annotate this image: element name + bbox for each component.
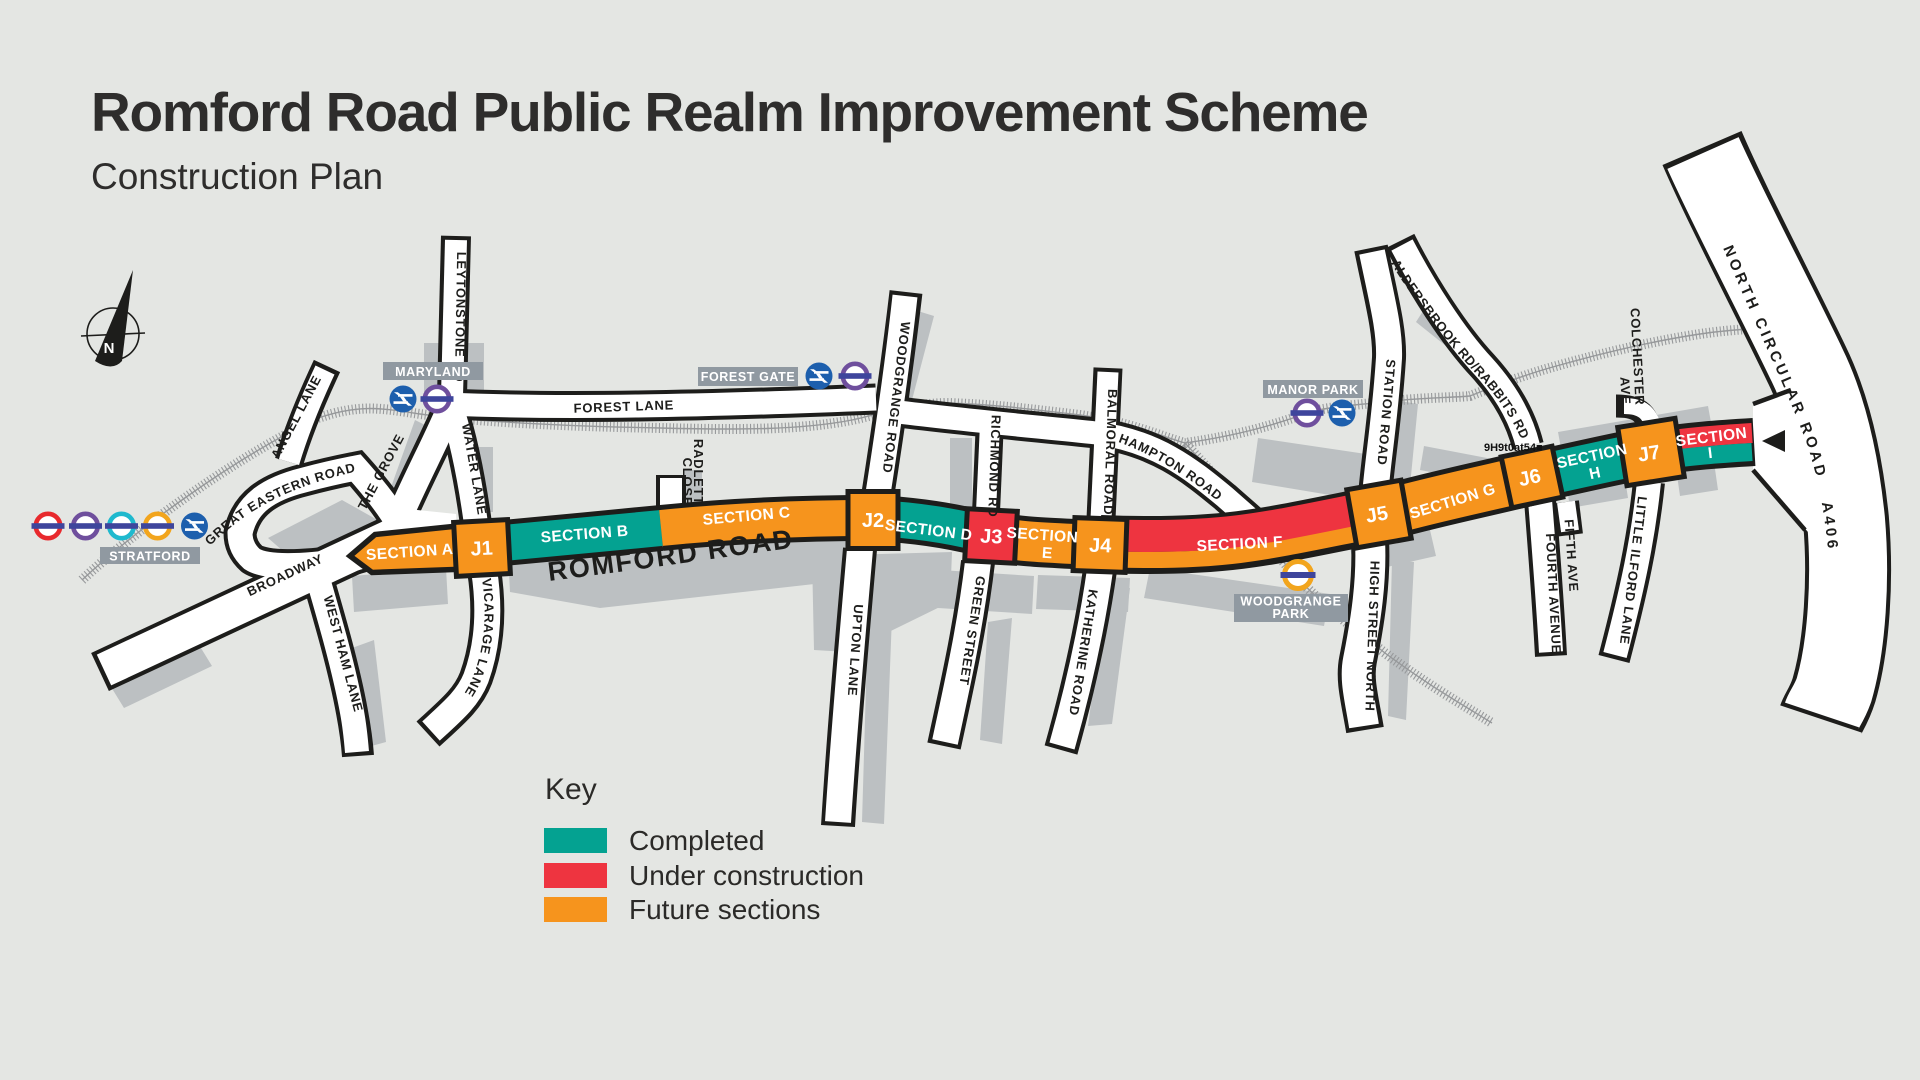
svg-text:MARYLAND: MARYLAND <box>395 365 471 379</box>
svg-text:PARK: PARK <box>1273 607 1310 621</box>
svg-text:Construction Plan: Construction Plan <box>91 156 383 197</box>
svg-text:STRATFORD: STRATFORD <box>109 550 191 564</box>
svg-text:AVE: AVE <box>1617 376 1633 405</box>
svg-text:J7: J7 <box>1636 441 1661 466</box>
svg-text:Future sections: Future sections <box>629 894 820 925</box>
svg-text:9H9t0at54■: 9H9t0at54■ <box>1484 442 1543 454</box>
svg-text:J3: J3 <box>980 525 1003 548</box>
svg-text:MANOR PARK: MANOR PARK <box>1267 383 1358 397</box>
svg-text:J6: J6 <box>1517 465 1543 491</box>
svg-text:N: N <box>104 340 115 357</box>
svg-text:J2: J2 <box>862 510 884 532</box>
svg-text:Romford Road Public Realm Impr: Romford Road Public Realm Improvement Sc… <box>91 81 1368 143</box>
svg-text:CLOSE: CLOSE <box>680 458 695 507</box>
svg-text:FOREST GATE: FOREST GATE <box>701 370 796 384</box>
svg-text:Completed: Completed <box>629 825 764 856</box>
svg-text:J1: J1 <box>470 537 493 560</box>
svg-text:Key: Key <box>545 773 597 806</box>
svg-text:J5: J5 <box>1364 502 1390 528</box>
svg-text:Under construction: Under construction <box>629 860 864 891</box>
svg-text:J4: J4 <box>1089 535 1113 558</box>
svg-text:E: E <box>1041 545 1053 563</box>
